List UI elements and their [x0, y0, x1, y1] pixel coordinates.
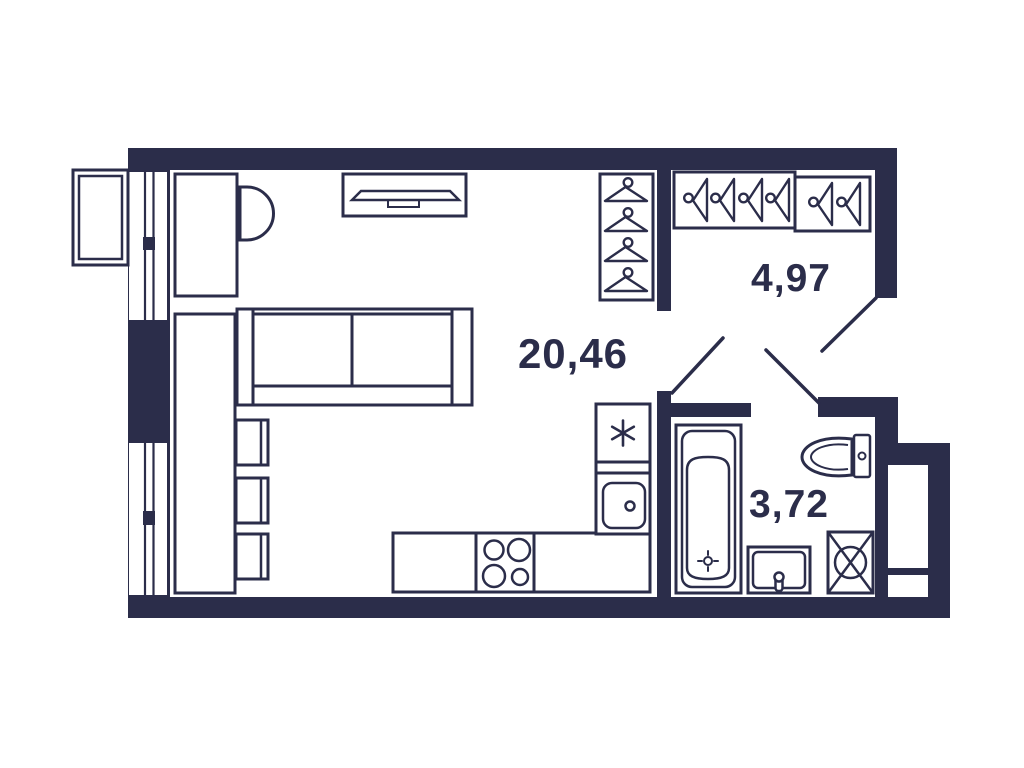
bathtub [676, 425, 741, 593]
kitchen [393, 404, 650, 592]
room-door-leaf [672, 338, 723, 393]
ventilation-shaft [888, 465, 928, 568]
toilet-tank [854, 435, 870, 477]
wall-bathroom-top-left [657, 403, 751, 417]
chair [236, 534, 268, 579]
wardrobe [600, 174, 653, 300]
room-hallway [674, 172, 870, 231]
washing-machine [828, 532, 873, 593]
window-lower-mullion [143, 511, 155, 525]
kitchen-counter [393, 533, 650, 592]
faucet-icon [775, 573, 784, 582]
chairs [236, 420, 268, 579]
wall-bathroom-top-right [818, 397, 875, 417]
wall-partition-hall [657, 170, 671, 311]
window-upper-mullion [143, 237, 155, 250]
room-living-kitchen [175, 174, 653, 593]
tv-screen [352, 191, 459, 200]
entrance-door-leaf [822, 298, 876, 351]
desk-chair [240, 187, 274, 240]
toilet [802, 435, 870, 477]
ac-basket [73, 170, 128, 265]
area-label-living-kitchen: 20,46 [518, 330, 628, 377]
bathroom-door-leaf [766, 350, 819, 403]
floor-plan-page: 20,46 4,97 3,72 [0, 0, 1024, 768]
tv-stand [343, 174, 466, 216]
table [175, 314, 235, 593]
wall-top [128, 148, 897, 170]
wall-bottom [128, 597, 950, 618]
sofa [237, 309, 472, 405]
area-label-bathroom: 3,72 [749, 483, 829, 526]
desk [175, 174, 237, 296]
kitchen-sink [603, 483, 645, 528]
ventilation-shaft-small [888, 575, 928, 597]
chair [236, 420, 268, 465]
floor-plan: 20,46 4,97 3,72 [0, 0, 1024, 768]
wall-right-top [875, 148, 897, 298]
area-label-hallway: 4,97 [751, 257, 831, 300]
wall-right-notch [875, 397, 898, 443]
doors [672, 298, 876, 403]
kitchen-shelf [596, 462, 650, 473]
wall-bathroom-left [657, 391, 671, 597]
vanity-sink [748, 547, 810, 593]
chair [236, 478, 268, 523]
